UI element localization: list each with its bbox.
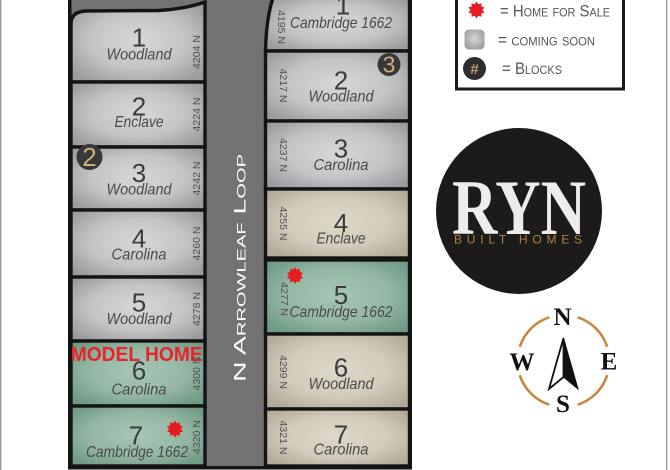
svg-text:4300 N: 4300 N	[191, 357, 203, 391]
svg-text:#: #	[470, 61, 479, 78]
svg-text:4217 N: 4217 N	[277, 69, 289, 103]
svg-text:4260 N: 4260 N	[191, 227, 203, 261]
svg-text:Woodland: Woodland	[309, 376, 375, 393]
svg-text:Carolina: Carolina	[314, 157, 369, 174]
svg-text:4299 N: 4299 N	[277, 355, 289, 389]
svg-text:3: 3	[383, 51, 396, 77]
svg-text:Cambridge 1662: Cambridge 1662	[86, 444, 188, 461]
svg-text:4242 N: 4242 N	[191, 162, 203, 196]
svg-text:Carolina: Carolina	[314, 442, 369, 459]
svg-text:Carolina: Carolina	[112, 247, 167, 264]
svg-text:N: N	[553, 304, 571, 331]
svg-text:= Home for Sale: = Home for Sale	[500, 3, 610, 21]
svg-text:4320 N: 4320 N	[191, 420, 203, 454]
svg-text:Woodland: Woodland	[309, 89, 375, 106]
svg-text:Cambridge 1662: Cambridge 1662	[290, 304, 393, 321]
svg-text:BUILT HOMES: BUILT HOMES	[454, 233, 582, 247]
svg-text:S: S	[556, 391, 570, 418]
svg-text:Enclave: Enclave	[317, 231, 366, 248]
svg-text:4237 N: 4237 N	[277, 138, 289, 172]
svg-text:E: E	[601, 349, 618, 376]
svg-text:= Blocks: = Blocks	[502, 60, 562, 78]
svg-text:4277 N: 4277 N	[278, 282, 290, 316]
svg-text:4195 N: 4195 N	[275, 10, 287, 44]
svg-text:4204 N: 4204 N	[191, 35, 203, 69]
svg-text:4255 N: 4255 N	[277, 207, 289, 241]
svg-text:4321 N: 4321 N	[277, 421, 289, 455]
svg-text:Woodland: Woodland	[107, 182, 173, 199]
svg-text:Woodland: Woodland	[107, 47, 173, 64]
svg-text:Cambridge 1662: Cambridge 1662	[290, 15, 392, 32]
svg-text:= coming soon: = coming soon	[498, 32, 595, 50]
svg-text:W: W	[510, 349, 535, 376]
svg-text:2: 2	[82, 142, 96, 172]
svg-text:4278 N: 4278 N	[191, 292, 203, 326]
svg-text:Enclave: Enclave	[115, 114, 164, 131]
svg-text:N Arrowleaf Loop: N Arrowleaf Loop	[231, 154, 250, 382]
svg-text:Carolina: Carolina	[112, 382, 167, 399]
svg-text:Woodland: Woodland	[107, 311, 173, 328]
svg-text:4224 N: 4224 N	[191, 98, 203, 132]
